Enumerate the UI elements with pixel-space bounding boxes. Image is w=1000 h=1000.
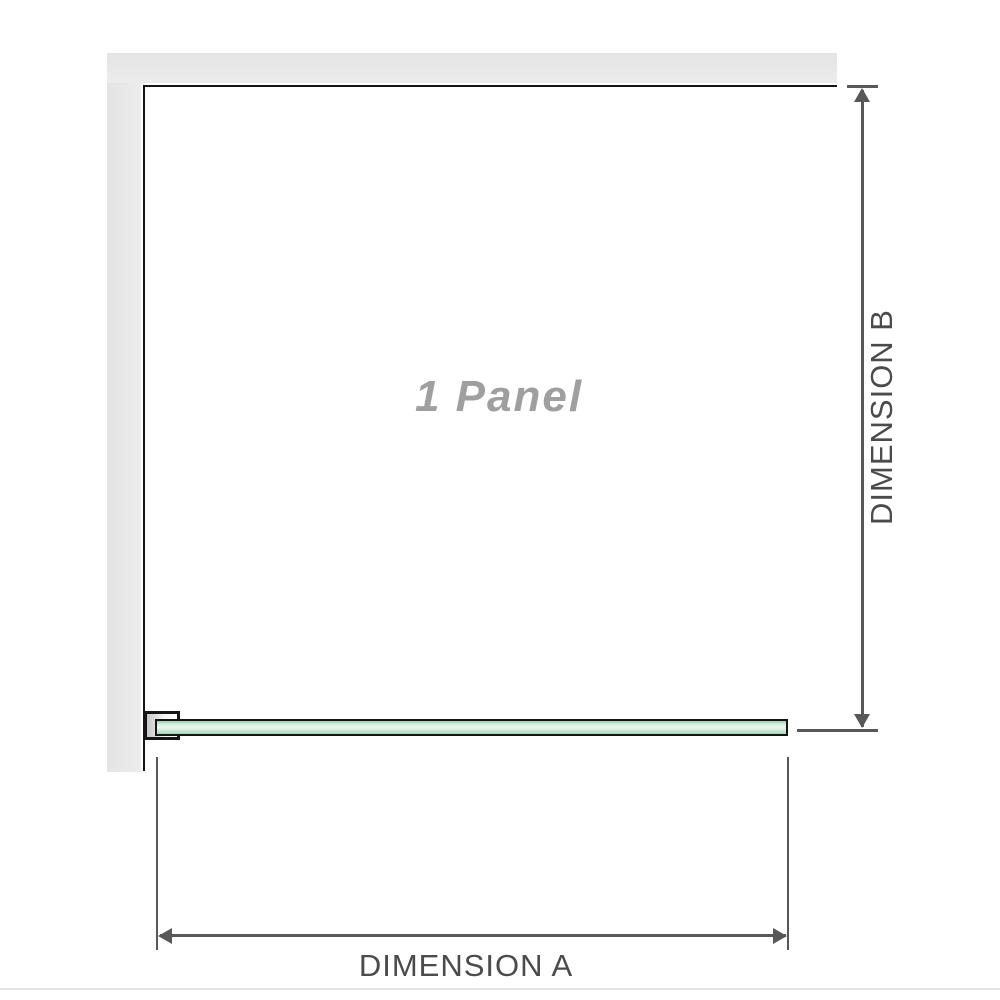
dimension-a-left-extension: [156, 757, 158, 950]
panel-count-label: 1 Panel: [299, 372, 699, 422]
arrow-right-icon: [773, 928, 787, 944]
dimension-a-label: DIMENSION A: [266, 948, 666, 984]
glass-panel-bar: [155, 719, 788, 736]
wall-top: [107, 53, 837, 83]
wall-left: [107, 53, 141, 772]
bottom-divider: [0, 988, 1000, 990]
arrow-down-icon: [854, 714, 870, 728]
wall-inner-edge-left: [143, 85, 145, 771]
dimension-a-right-extension: [787, 757, 789, 950]
shower-panel-dimension-diagram: 1 Panel DIMENSION B DIMENSION A: [0, 0, 1000, 1000]
dimension-b-label: DIMENSION B: [864, 217, 900, 617]
dimension-b-bottom-tick: [797, 729, 878, 732]
dimension-a-line: [160, 934, 786, 937]
wall-inner-edge-top: [143, 85, 837, 87]
